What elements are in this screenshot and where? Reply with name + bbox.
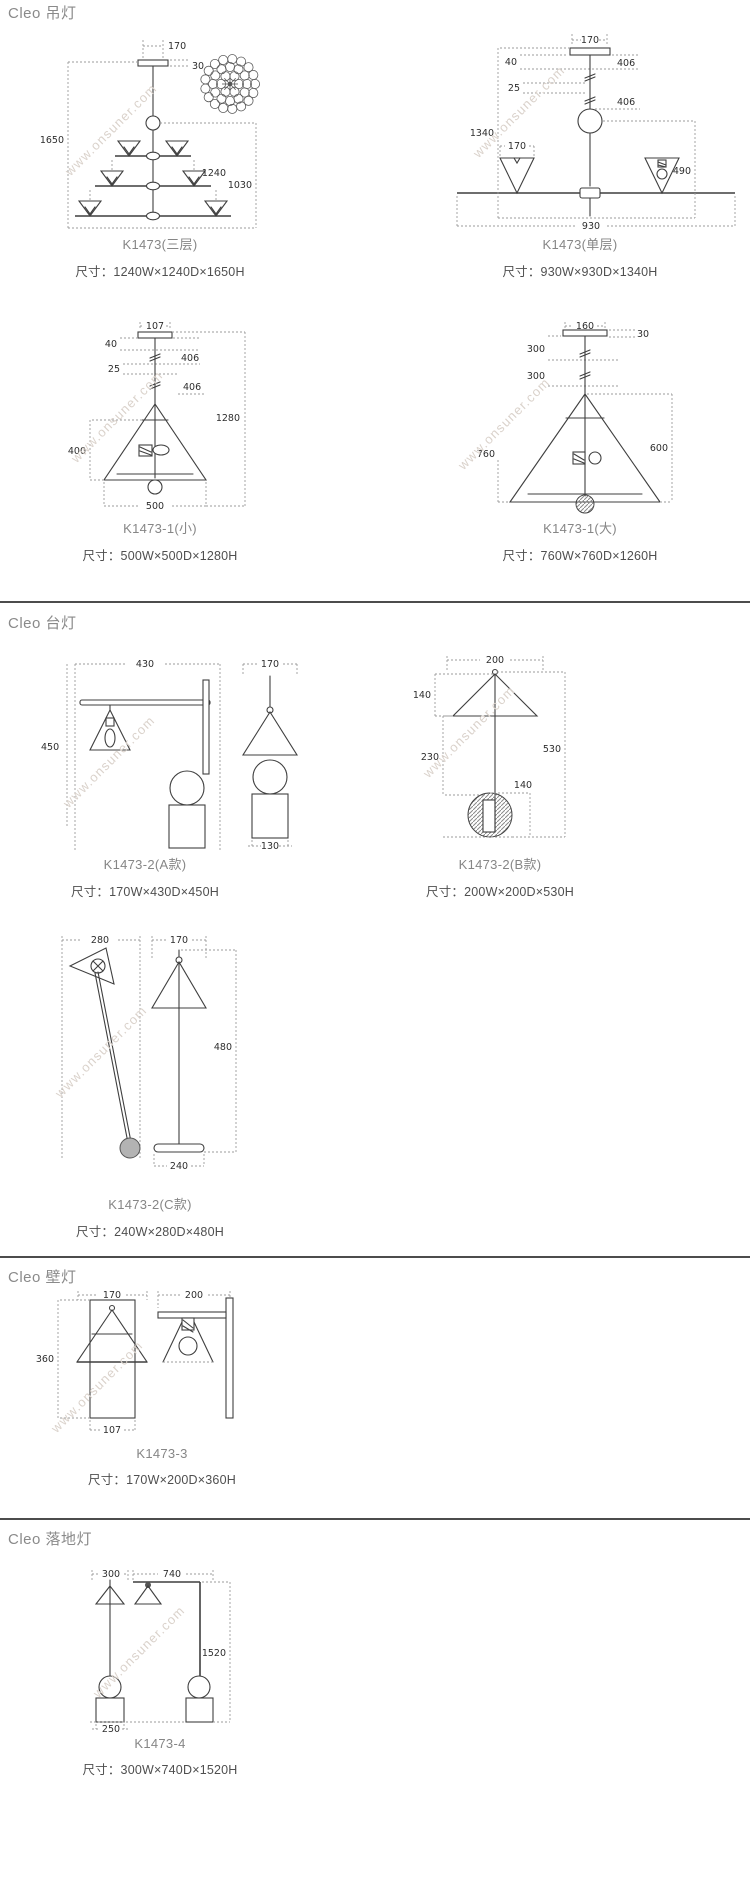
section-title-wall: Cleo 壁灯 <box>8 1266 77 1287</box>
dim-label: 130 <box>261 841 279 852</box>
dim-label: 930 <box>582 221 600 232</box>
dim-label: 40 <box>105 339 117 350</box>
dim-label: 107 <box>146 321 164 332</box>
dim-label: 30 <box>637 329 649 340</box>
dim-label: 30 <box>192 61 204 72</box>
spec-sheet: Cleo 吊灯 170 30 1 <box>0 0 750 1896</box>
product-name: K1473(单层) <box>460 234 700 253</box>
product-name: K1473-4 <box>40 1736 280 1751</box>
dim-label: 25 <box>508 83 520 94</box>
dim-label: 170 <box>168 41 186 52</box>
product-size: 尺寸：170W×200D×360H <box>42 1469 282 1488</box>
dim-label: 406 <box>617 97 635 108</box>
product-size: 尺寸：500W×500D×1280H <box>40 545 280 564</box>
dim-label: 360 <box>36 1354 54 1365</box>
dim-label: 400 <box>68 446 86 457</box>
product-name: K1473-2(B款) <box>385 854 615 873</box>
section-title-floor: Cleo 落地灯 <box>8 1528 92 1549</box>
caption-pendant-3tier: K1473(三层) 尺寸：1240W×1240D×1650H <box>40 234 280 280</box>
dim-label: 170 <box>103 1290 121 1301</box>
wall-drawing: 170 360 107 200 <box>30 1288 270 1448</box>
product-name: K1473-1(小) <box>40 518 280 537</box>
product-size: 尺寸：760W×760D×1260H <box>460 545 700 564</box>
dim-label: 200 <box>486 655 504 666</box>
product-size: 尺寸：170W×430D×450H <box>25 881 265 900</box>
diagram-pendant-large: 160 30 300 300 760 600 <box>440 316 690 521</box>
dim-label: 740 <box>163 1569 181 1580</box>
caption-pendant-large: K1473-1(大) 尺寸：760W×760D×1260H <box>460 518 700 564</box>
dim-label: 406 <box>617 58 635 69</box>
pendant-large-drawing: 160 30 300 300 760 600 <box>440 316 690 521</box>
dim-label: 490 <box>673 166 691 177</box>
dim-label: 480 <box>214 1042 232 1053</box>
dim-label: 230 <box>421 752 439 763</box>
caption-table-c: K1473-2(C款) 尺寸：240W×280D×480H <box>30 1194 270 1240</box>
product-name: K1473-2(C款) <box>30 1194 270 1213</box>
product-size: 尺寸：240W×280D×480H <box>30 1221 270 1240</box>
dim-label: 25 <box>108 364 120 375</box>
dim-label: 170 <box>261 659 279 670</box>
dim-label: 406 <box>181 353 199 364</box>
dim-label: 170 <box>581 35 599 46</box>
caption-wall: K1473-3 尺寸：170W×200D×360H <box>42 1446 282 1488</box>
product-size: 尺寸：200W×200D×530H <box>385 881 615 900</box>
diagram-table-a: 430 450 170 130 <box>35 650 325 856</box>
product-size: 尺寸：300W×740D×1520H <box>40 1759 280 1778</box>
dim-label: 107 <box>103 1425 121 1436</box>
pendant-1tier-drawing: 170 40 25 406 406 170 1340 <box>395 26 750 236</box>
diagram-table-b: 200 140 230 530 140 <box>405 650 590 856</box>
chandelier-top-view <box>201 55 260 114</box>
product-name: K1473(三层) <box>40 234 280 253</box>
product-size: 尺寸：930W×930D×1340H <box>460 261 700 280</box>
caption-floor: K1473-4 尺寸：300W×740D×1520H <box>40 1736 280 1778</box>
dim-label: 300 <box>102 1569 120 1580</box>
table-c-drawing: 280 170 480 240 <box>40 928 290 1183</box>
dim-label: 406 <box>183 382 201 393</box>
caption-pendant-small: K1473-1(小) 尺寸：500W×500D×1280H <box>40 518 280 564</box>
caption-table-b: K1473-2(B款) 尺寸：200W×200D×530H <box>385 854 615 900</box>
dim-label: 1240 <box>202 168 226 179</box>
pendant-small-drawing: 107 40 25 406 406 400 1280 500 <box>40 316 280 521</box>
dim-label: 760 <box>477 449 495 460</box>
dim-label: 200 <box>185 1290 203 1301</box>
section-title-pendant: Cleo 吊灯 <box>8 2 77 23</box>
section-divider <box>0 601 750 603</box>
dim-label: 250 <box>102 1724 120 1735</box>
dim-label: 140 <box>514 780 532 791</box>
dim-label: 450 <box>41 742 59 753</box>
dim-label: 600 <box>650 443 668 454</box>
diagram-wall: 170 360 107 200 <box>30 1288 270 1448</box>
dim-label: 140 <box>413 690 431 701</box>
diagram-pendant-1tier: 170 40 25 406 406 170 1340 <box>395 26 750 236</box>
dim-label: 1030 <box>228 180 252 191</box>
section-divider <box>0 1518 750 1520</box>
caption-table-a: K1473-2(A款) 尺寸：170W×430D×450H <box>25 854 265 900</box>
dim-label: 280 <box>91 935 109 946</box>
product-name: K1473-3 <box>42 1446 282 1461</box>
dim-label: 500 <box>146 501 164 512</box>
floor-drawing: 300 740 250 1520 <box>60 1566 290 1744</box>
table-a-drawing: 430 450 170 130 <box>35 650 325 856</box>
dim-label: 1340 <box>470 128 494 139</box>
table-b-drawing: 200 140 230 530 140 <box>405 650 590 856</box>
dim-label: 240 <box>170 1161 188 1172</box>
diagram-floor: 300 740 250 1520 <box>60 1566 290 1744</box>
section-divider <box>0 1256 750 1258</box>
pendant-3tier-drawing: 170 30 1650 1240 1030 <box>40 28 330 236</box>
product-size: 尺寸：1240W×1240D×1650H <box>40 261 280 280</box>
product-name: K1473-2(A款) <box>25 854 265 873</box>
dim-label: 430 <box>136 659 154 670</box>
dim-label: 1280 <box>216 413 240 424</box>
dim-label: 530 <box>543 744 561 755</box>
product-name: K1473-1(大) <box>460 518 700 537</box>
dim-label: 300 <box>527 344 545 355</box>
diagram-table-c: 280 170 480 240 <box>40 928 290 1183</box>
dim-label: 1650 <box>40 135 64 146</box>
dim-label: 300 <box>527 371 545 382</box>
dim-label: 40 <box>505 57 517 68</box>
caption-pendant-1tier: K1473(单层) 尺寸：930W×930D×1340H <box>460 234 700 280</box>
dim-label: 170 <box>170 935 188 946</box>
diagram-pendant-3tier: 170 30 1650 1240 1030 <box>40 28 330 236</box>
dim-label: 170 <box>508 141 526 152</box>
dim-label: 1520 <box>202 1648 226 1659</box>
diagram-pendant-small: 107 40 25 406 406 400 1280 500 <box>40 316 280 521</box>
section-title-table: Cleo 台灯 <box>8 612 77 633</box>
